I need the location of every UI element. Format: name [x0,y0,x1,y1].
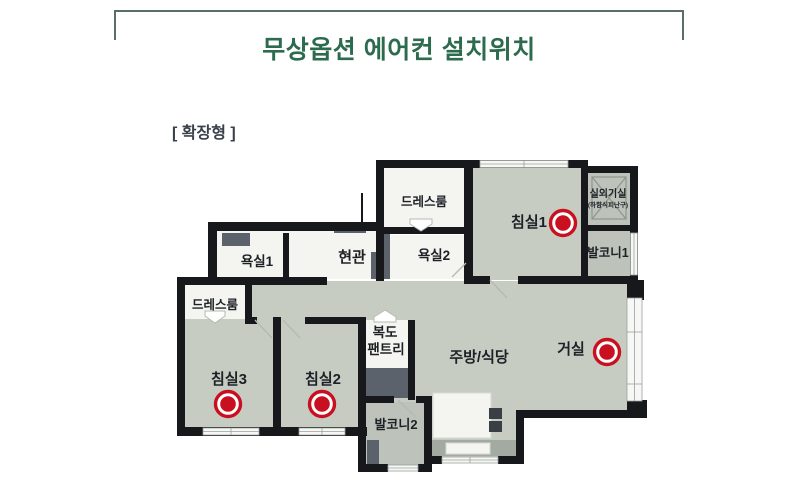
room-label-balcony1: 발코니1 [587,245,629,260]
closet-block [222,233,250,246]
room-label-dressroom-left: 드레스룸 [192,297,239,312]
room-label-outdoor-unit: 실외기실 [590,187,627,200]
ac-marker-bedroom2 [310,392,335,417]
ac-marker-bedroom3 [216,392,241,417]
pantry-shaft [366,368,408,398]
floorplan-canvas: 무상옵션 에어컨 설치위치 [ 확장형 ] [0,0,800,497]
plan-type-label: [ 확장형 ] [172,123,236,142]
stove [489,408,502,419]
room-label-bath2: 욕실2 [418,248,450,263]
room-label-entrance: 현관 [338,249,366,266]
room-label-dressroom-top: 드레스룸 [401,194,448,209]
room-label-outdoor-unit-note: (하향식피난구) [588,200,628,209]
room-label-kitchen: 주방/식당 [449,348,509,366]
room-label-bedroom2: 침실2 [305,371,341,388]
ac-marker-living [595,340,620,365]
room-label-corridor: 복도 [373,325,398,340]
room-label-balcony2: 발코니2 [374,417,417,432]
room-label-pantry: 팬트리 [367,342,404,357]
free-option-ac-location-page: 무상옵션 에어컨 설치위치 [ 확장형 ] [0,0,800,497]
page-title: 무상옵션 에어컨 설치위치 [262,36,535,64]
ac-marker-bedroom1 [551,211,576,236]
room-label-bath1: 욕실1 [241,254,274,269]
balcony2-shaft [367,440,379,464]
room-label-bedroom1: 침실1 [511,214,547,231]
room-label-bedroom3: 침실3 [211,371,247,388]
room-label-living: 거실 [557,341,585,358]
kitchen-island [433,393,491,438]
sink-unit [446,443,490,454]
bath2-shaft [384,233,390,279]
oven [489,421,502,432]
